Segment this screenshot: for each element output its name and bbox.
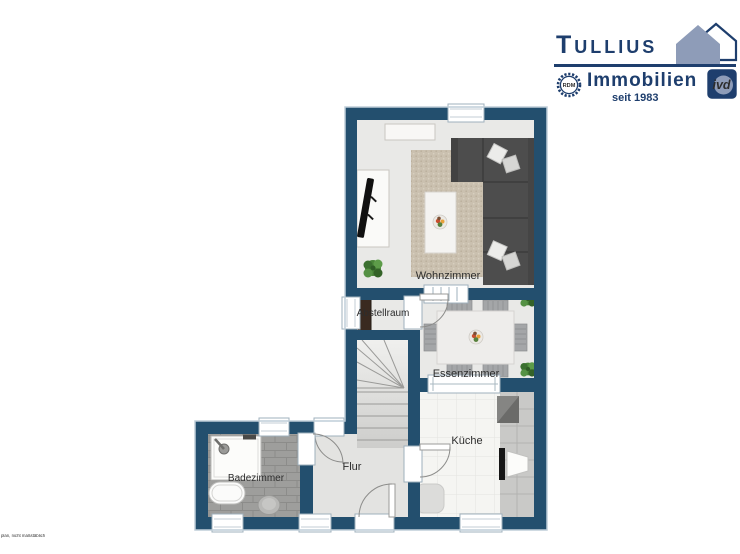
room-label-kueche: Küche bbox=[451, 435, 482, 447]
plant-icon bbox=[520, 362, 535, 376]
sideboard bbox=[385, 124, 435, 140]
plant-icon bbox=[364, 260, 383, 278]
sofa-backrest bbox=[528, 138, 534, 285]
bath-fixture bbox=[243, 435, 256, 440]
dining-table-bowl bbox=[469, 330, 483, 344]
room-label-wohnzimmer: Wohnzimmer bbox=[416, 270, 481, 282]
staircase bbox=[357, 340, 408, 448]
scale-disclaimer: plan, nicht maßstäblich bbox=[1, 534, 45, 538]
room-label-flur: Flur bbox=[343, 461, 362, 473]
room-label-badezimmer: Badezimmer bbox=[228, 473, 285, 484]
coffee-table-bowl bbox=[433, 215, 447, 229]
kitchen-mat bbox=[416, 484, 444, 513]
floorplan: Wohnzimmer Abstellraum Essenzimmer Küche… bbox=[0, 0, 740, 554]
page: Tullius RDM Immobilien ivd seit 1983 bbox=[0, 0, 740, 554]
toilet-lid bbox=[262, 498, 276, 510]
stove bbox=[497, 396, 519, 423]
room-label-abstellraum: Abstellraum bbox=[357, 308, 410, 319]
room-label-essenzimmer: Essenzimmer bbox=[433, 368, 500, 380]
sofa-armrest bbox=[451, 138, 458, 182]
